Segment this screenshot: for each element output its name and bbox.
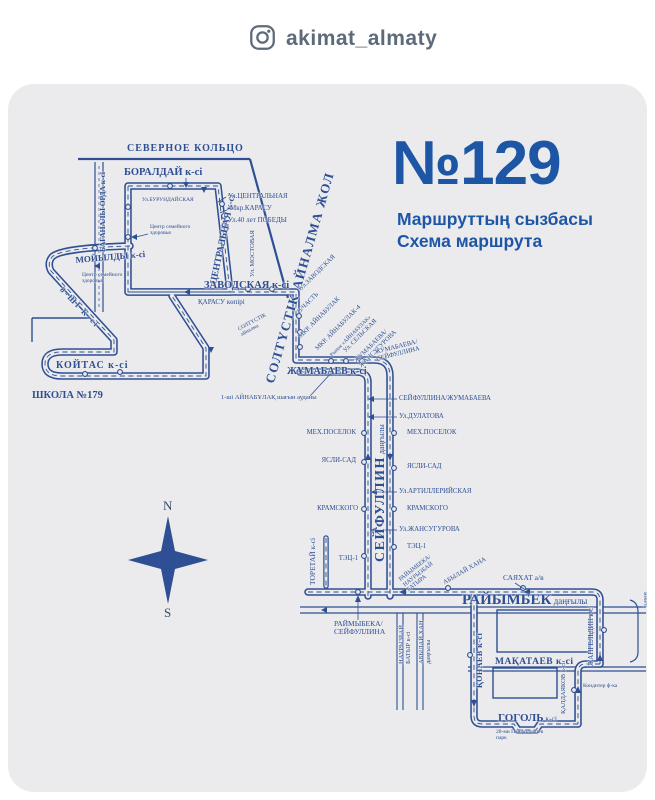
stop-label-mekhposelok-left: МЕХ.ПОСЕЛОК xyxy=(296,429,356,437)
subtitle-kazakh: Маршруттың сызбасы xyxy=(397,209,593,230)
stop-label-zavodskaya: ЗАВОДСКАЯ к-сі xyxy=(204,280,289,292)
street-label-nauryzbai-batyr: НАУРЫЗБАЙ БАТЫР к-сі xyxy=(398,625,413,664)
compass-north-label: N xyxy=(163,498,172,514)
street-label-burundaiskaya: Ул.БУРУНДАЙСКАЯ xyxy=(142,197,194,203)
street-label-gogol-name: ГОГОЛЬ xyxy=(498,712,543,724)
street-label-kaldayakov: ҚАЛДАЯКОВ к-сі xyxy=(560,662,567,714)
stop-label-kramskogo-left: КРАМСКОГО xyxy=(298,505,358,513)
stop-label-raimybeka-seifullina: РАЙМЫБЕКА/ СЕЙФУЛЛИНА xyxy=(334,620,385,637)
street-label-gogol-suffix: к-сі xyxy=(543,714,556,723)
poi-label-konditer-fabrika: Кондитер ф-ка xyxy=(583,683,617,689)
stop-label-kramskogo-right: КРАМСКОГО xyxy=(407,505,448,513)
area-label-ainabulak-1: 1-ші АЙНАБҰЛАҚ шағын ауданы xyxy=(221,394,317,401)
street-label-gogol: ГОГОЛЬ к-сі xyxy=(498,708,557,726)
street-label-konaev: ҚОНАЕВ к-сі xyxy=(476,633,485,688)
street-label-baganaly-orda: БАГАНАЛЫ ОРДА к-сі xyxy=(99,172,107,252)
stop-label-ul-40-let-pobedy: Ул.40 лет ПОБЕДЫ xyxy=(228,217,287,225)
subtitle-russian: Схема маршрута xyxy=(397,231,542,252)
stop-label-seifullina-zhumabaeva: СЕЙФУЛЛИНА/ЖУМАБАЕВА xyxy=(399,395,491,403)
route-number: №129 xyxy=(392,128,561,199)
street-label-mostovaya: Ул. МОСТОВАЯ xyxy=(249,230,256,277)
street-label-seifullin-suffix: даңғылы xyxy=(377,424,386,456)
stop-label-mekhposelok-right: МЕХ.ПОСЕЛОК xyxy=(407,429,456,437)
street-label-raiymbek-name: РАЙЫМБЕК xyxy=(462,592,551,608)
poi-label-health-center-1: Центр семейного здоровья xyxy=(150,224,190,236)
poi-label-shkola-179: ШКОЛА №179 xyxy=(32,390,103,402)
poi-label-health-center-2: Центр семейного здоровья xyxy=(82,272,122,284)
compass-south-label: S xyxy=(164,605,171,621)
stop-label-tec1-right: ТЭЦ-1 xyxy=(407,543,426,551)
poi-label-park-28: 28-ми Панфиловцев парк xyxy=(496,729,543,741)
street-label-zhangeldin: ЖАНГЕЛЬДИН к-сі xyxy=(588,606,596,666)
stop-markers xyxy=(83,184,607,693)
stop-label-koitas: КОЙТАС к-сі xyxy=(56,360,128,371)
stop-label-yasli-sad-right: ЯСЛИ-САД xyxy=(407,463,441,471)
street-label-severnoe-koltso: СЕВЕРНОЕ КОЛЬЦО xyxy=(127,143,244,154)
street-label-toretai: ТОРЕТАЙ к-сі xyxy=(309,538,317,585)
street-label-raiymbek-suffix: даңғылы xyxy=(551,596,587,606)
poi-label-mechet: мечеть xyxy=(642,592,648,608)
stop-label-sayakhat: САЯХАТ а/в xyxy=(503,574,544,582)
street-label-seifullin-name: СЕЙФУЛЛИН xyxy=(373,456,388,562)
stop-label-yasli-sad-left: ЯСЛИ-САД xyxy=(296,457,356,465)
street-label-abylai-khan: АБЫЛАЙ ХАН даңғылы xyxy=(418,620,433,664)
stop-label-ul-centralnaya: Ул.ЦЕНТРАЛЬНАЯ xyxy=(228,193,288,201)
stop-label-artilleriyskaya: Ул.АРТИЛЛЕРИЙСКАЯ xyxy=(399,488,471,496)
stop-label-zhansugurova: Ул.ЖАНСУГУРОВА xyxy=(399,526,460,534)
poi-label-karasu-bridge: ҚАРАСУ көпірі xyxy=(198,299,245,307)
street-label-raiymbek: РАЙЫМБЕК даңғылы xyxy=(462,591,587,609)
compass-star-icon xyxy=(128,516,208,604)
stop-label-boraldai: БОРАЛДАЙ к-сі xyxy=(124,167,202,179)
stop-label-tec1-left: ТЭЦ-1 xyxy=(298,555,358,563)
stop-label-mkr-karasu: Мкр.КАРАСУ xyxy=(230,205,272,213)
street-label-seifullin: СЕЙФУЛЛИН даңғылы xyxy=(371,424,389,562)
street-label-zhumabaev: ЖҰМАБАЕВ к-сі xyxy=(287,366,367,377)
stop-label-dulatova: Ул.ДУЛАТОВА xyxy=(399,413,444,421)
